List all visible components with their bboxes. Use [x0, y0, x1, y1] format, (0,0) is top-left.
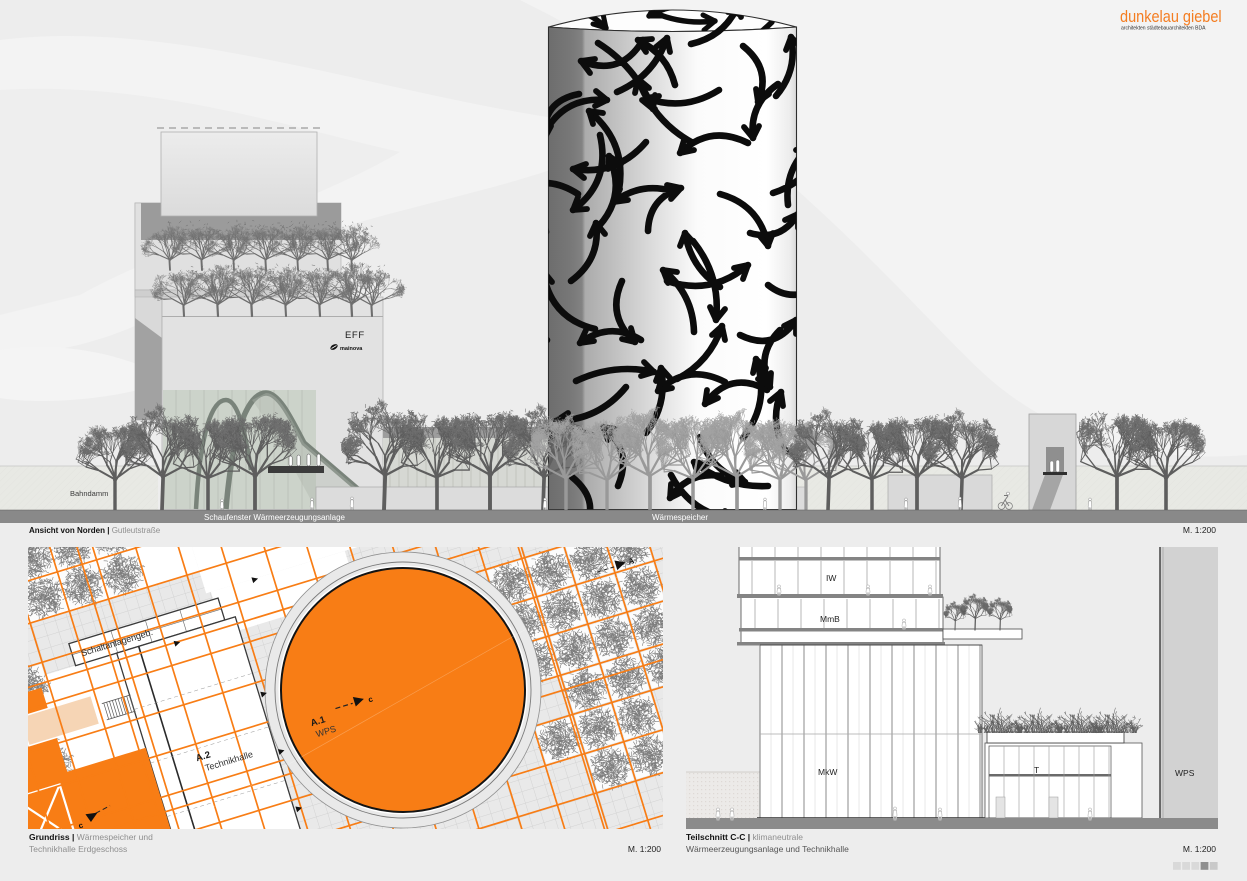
svg-text:MkW: MkW: [818, 767, 837, 777]
svg-text:architekten städtebauarchitekt: architekten städtebauarchitekten BDA: [1121, 25, 1206, 31]
svg-text:M. 1:200: M. 1:200: [1183, 525, 1216, 535]
svg-text:EFF: EFF: [345, 330, 365, 341]
svg-text:Bahndamm: Bahndamm: [70, 489, 108, 498]
svg-text:Schaufenster Wärmeerzeugungsan: Schaufenster Wärmeerzeugungsanlage: [204, 513, 346, 522]
svg-text:Grundriss | Wärmespeicher und: Grundriss | Wärmespeicher und: [29, 832, 153, 842]
svg-text:Ansicht von Norden | Gutleutst: Ansicht von Norden | Gutleutstraße: [29, 526, 161, 535]
svg-text:Technikhalle Erdgeschoss: Technikhalle Erdgeschoss: [29, 844, 127, 854]
svg-text:T: T: [1034, 765, 1039, 775]
svg-text:M. 1:200: M. 1:200: [628, 844, 661, 854]
svg-text:dunkelau giebel: dunkelau giebel: [1120, 8, 1222, 26]
svg-text:MmB: MmB: [820, 614, 840, 624]
svg-text:Teilschnitt C-C | klimaneutral: Teilschnitt C-C | klimaneutrale: [686, 832, 803, 842]
svg-text:Wärmeerzeugungsanlage und Tech: Wärmeerzeugungsanlage und Technikhalle: [686, 844, 849, 854]
svg-text:WPS: WPS: [1175, 768, 1195, 778]
svg-text:Wärmespeicher: Wärmespeicher: [652, 513, 708, 522]
svg-text:IW: IW: [826, 573, 836, 583]
svg-text:M. 1:200: M. 1:200: [1183, 844, 1216, 854]
svg-text:mainova: mainova: [340, 346, 363, 352]
